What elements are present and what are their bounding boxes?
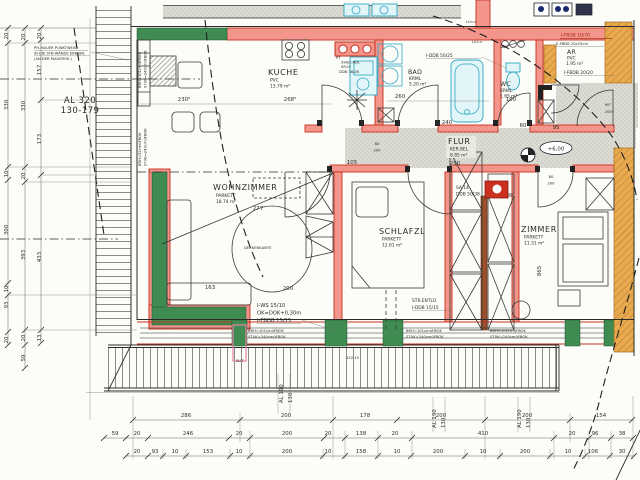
pier-1 (232, 320, 247, 346)
boiler-unit (335, 42, 375, 56)
dimension-label: 200 (520, 449, 531, 455)
brh-1b: STUK=240cmüFBOK (248, 335, 286, 339)
dimension-label: 246 (183, 431, 194, 437)
upper-dot-2 (555, 6, 561, 12)
dimension-label: 200 (436, 413, 447, 419)
fridge (150, 56, 176, 86)
flur-north-wall-c (438, 125, 498, 132)
dimension-label: 20 (21, 172, 27, 179)
dimension-label: 10 (480, 449, 487, 455)
upper-dot-1 (538, 6, 544, 12)
idim-k2: 268⁵ (284, 96, 296, 103)
room-label-zimmer: ZIMMER (521, 225, 557, 234)
brh-3b: STUK=240cmüFBOK (490, 335, 528, 339)
pier-2 (325, 320, 347, 346)
dimension-label: 200 (282, 449, 293, 455)
elevation-value: +6,00 (548, 147, 565, 153)
iws-label-1: I-WS 15/10 (257, 303, 285, 309)
side-stair-hatch (96, 6, 131, 336)
room-floor-ar: PVC (567, 56, 576, 62)
flur-south-wall-b (450, 165, 538, 172)
room-floor-schlafzimmer: PARKETT (382, 237, 402, 243)
idim-f2: 290 (450, 161, 461, 167)
dimension-label: 20 (325, 431, 332, 437)
dimension-label: 20 (21, 33, 27, 40)
pt-label-3: SR15 (341, 65, 351, 69)
flur-south-wall-a (330, 165, 408, 172)
iddb5025-label: I-DDB 50/25 (426, 53, 453, 59)
wc-cistern (506, 63, 520, 72)
brh-2a: BRH=101cmüFBOK (406, 329, 442, 333)
brh-v2a: BRH=52cmüFBOK (138, 132, 142, 166)
room-area-flur: 8.85 m² (450, 153, 467, 159)
lu-label-1: LU>> (466, 20, 477, 24)
dimension-label: 330 (4, 99, 10, 110)
dimension-label: 410 (478, 431, 489, 437)
dimension-label: 10 (4, 285, 10, 292)
brh-v1a: BRH=101cmüFBOK (138, 52, 142, 88)
room-floor-kueche: PVC (270, 78, 279, 84)
brh-v1b: STUK=240cmüFBOK (144, 50, 148, 88)
door80-b: 80 (549, 175, 554, 179)
dimension-label: 20 (4, 32, 10, 39)
dimension-label: 300 (4, 224, 10, 235)
dimension-label: 157 (37, 65, 43, 75)
idim-f4: 95 (553, 125, 560, 131)
pier-3 (383, 320, 403, 346)
dimension-label: 138 (356, 431, 367, 437)
strentl-label-2: I-DDB 15/15 (412, 305, 439, 311)
idim-w3: 200 (283, 286, 294, 292)
room-label-ar: AR (567, 49, 577, 56)
dimension-label: 200 (522, 413, 533, 419)
pt-label-4: DDB 38/26 (339, 70, 360, 74)
existing-wall-east (614, 148, 634, 352)
floorplan-drawing: +6,00 KUCHE PVC 13.79 m² BAD KRML 5.20 m… (0, 0, 640, 480)
deckenkante-label: DECKENKANTE (244, 246, 272, 250)
dimension-label: 38 (619, 431, 626, 437)
brh-v2b: STUK=240cmüFBOK (144, 128, 148, 166)
dim-152-15: 152 15 (346, 356, 360, 360)
strentl-label-1: STR.ENTLÜ. (412, 297, 437, 304)
dimension-label: 200 (282, 431, 293, 437)
dimension-label: 200 (281, 413, 292, 419)
upper-box-3 (576, 4, 592, 15)
room-label-wohnzimmer: WOHNZIMMER (213, 183, 277, 192)
dimension-label: 10 (4, 170, 10, 177)
efbdb2025-label: E-FBDB 20x25cm (556, 42, 588, 46)
idim-z1: 865 (537, 266, 543, 276)
room-label-schlafzimmer: SCHLAFZL (379, 227, 425, 236)
idim-f1: 105 (347, 160, 357, 166)
room-floor-flur: KER.BEL (450, 147, 469, 153)
dimension-label: 173 (37, 134, 43, 144)
dimension-label: 59 (21, 354, 27, 361)
dimension-label: 200 (433, 449, 444, 455)
flur-north-wall-d (530, 125, 614, 132)
balcony-deck-hatch (108, 347, 559, 388)
room-area-kueche: 13.79 m² (270, 84, 290, 90)
idim-w2: 163 (205, 285, 215, 291)
wall-connector (476, 0, 490, 28)
idim-f3: 60 (520, 123, 527, 129)
idim-wc1: 100 (506, 97, 517, 103)
upper-landing-floor (163, 6, 461, 18)
brh-3a: BRH=101cmüFBOK (490, 329, 526, 333)
slit-label: SLIT (236, 359, 244, 363)
room-label-bad: BAD (408, 69, 422, 76)
dimension-label: 393 (21, 250, 27, 260)
al190-1b: 130 (288, 392, 294, 403)
dimension-label: 93 (152, 449, 159, 455)
al190-1: AL 190 (279, 384, 285, 403)
l-wall-green-v (152, 172, 167, 324)
dimension-label: 153 (203, 449, 213, 455)
ph-mauer-2: IN DIE STB-WÄNDE EINBDN. (34, 51, 85, 56)
flur-south-wall-c (573, 165, 614, 172)
al320-range: 130-179 (61, 106, 100, 116)
pier-4 (565, 320, 580, 346)
room-area-wohnzimmer: 18.74 m² (216, 199, 236, 205)
dimension-label: 154 (596, 413, 607, 419)
dimension-label: 20 (569, 431, 576, 437)
dimension-label: 158 (356, 449, 367, 455)
brh-1a: BRH=101cmüFBOK (248, 329, 284, 333)
sa-shaft-circle (493, 185, 502, 194)
idim-k1: 230⁵ (178, 96, 190, 103)
dimension-label: 20 (4, 336, 10, 343)
flur-north-wall-a (305, 125, 322, 132)
dimension-label: 10 (236, 449, 243, 455)
dimension-label: 20 (392, 431, 399, 437)
dimension-label: 10 (394, 449, 401, 455)
floorplan-canvas: +6,00 KUCHE PVC 13.79 m² BAD KRML 5.20 m… (0, 0, 640, 480)
room-floor-wc: KRML (500, 88, 513, 94)
idim-w1: 277 (253, 206, 263, 212)
room-area-ar: 1.95 m² (566, 61, 583, 67)
dimension-label: 20 (21, 334, 27, 341)
upper-dot-3 (563, 6, 569, 12)
room-area-zimmer: 11.31 m² (524, 241, 544, 247)
door200-b: 200 (547, 182, 555, 186)
existing-wall-ar (544, 45, 556, 83)
door80-a: 80 (375, 142, 380, 146)
al320-label: AL 320 (64, 96, 96, 106)
flur-floor (345, 128, 614, 168)
wall-wohnz-schlafz (334, 172, 342, 322)
sa14-label-2: DDB 50/38 (456, 192, 480, 198)
wall-wc-ar (536, 40, 543, 125)
dimension-label: 20 (134, 431, 141, 437)
iws-label-3: I-FBDB 15/15 (257, 318, 291, 324)
dimension-label: 106 (588, 449, 599, 455)
ifbdb2020-label: I-FBDB 20/20 (564, 70, 593, 76)
room-floor-bad: KRML (409, 76, 422, 82)
vent-symbol (500, 40, 526, 48)
room-floor-zimmer: PARKETT (524, 235, 544, 241)
brh-2b: STUK=240cmüFBOK (406, 335, 444, 339)
dimension-label: 13 (37, 335, 43, 342)
existing-wall-top-right (605, 22, 632, 83)
dimension-label: 30 (619, 449, 626, 455)
room-floor-wohnzimmer: PARKETT (216, 193, 236, 199)
door200e-label: 200! (605, 110, 614, 114)
dimension-label: 10 (565, 449, 572, 455)
idim-b2: 240 (442, 120, 453, 126)
dimension-label: 96 (592, 431, 599, 437)
dimension-label: 20 (134, 449, 141, 455)
pt-label-1: PT (336, 56, 341, 60)
room-area-bad: 5.20 m² (409, 82, 426, 88)
dimension-label: 59 (112, 431, 119, 437)
dimension-label: 433 (37, 252, 43, 262)
top-insulated-wall (137, 28, 227, 40)
dimension-label: 286 (181, 413, 192, 419)
wall-schlafz-shaft (445, 172, 452, 322)
wall-shaft-zimmer (512, 172, 519, 322)
dimension-label: 10 (325, 449, 332, 455)
dimension-label: 93 (4, 302, 10, 309)
room-label-kueche: KUCHE (268, 68, 299, 77)
door200-a: 200 (373, 149, 381, 153)
idim-b1: 260 (395, 94, 406, 100)
ifbdb1070-label: I-FBDB 10/70 (561, 33, 590, 39)
sa14-label-1: SA 14 (456, 185, 469, 191)
dimension-label: 330 (21, 100, 27, 111)
pt-label-2: 9x6/C-BDL (341, 61, 361, 65)
room-label-flur: FLUR (448, 137, 470, 146)
dimension-label: 20 (37, 32, 43, 39)
dimension-label: 20 (236, 431, 243, 437)
door90-label: 90° (605, 103, 612, 107)
lu-label-2: LU>> (472, 40, 483, 44)
upper-box-2 (552, 3, 572, 16)
flur-north-wall-b (362, 125, 398, 132)
room-label-wc: WC (500, 81, 511, 88)
dimension-label: 10 (172, 449, 179, 455)
ph-mauer-3: (AN DER MAUEROK.) (34, 57, 73, 61)
room-area-schlafzimmer: 12.61 m² (382, 243, 402, 249)
iws-label-2: OK=DOK+0,30m (257, 311, 301, 317)
dimension-label: 178 (360, 413, 371, 419)
